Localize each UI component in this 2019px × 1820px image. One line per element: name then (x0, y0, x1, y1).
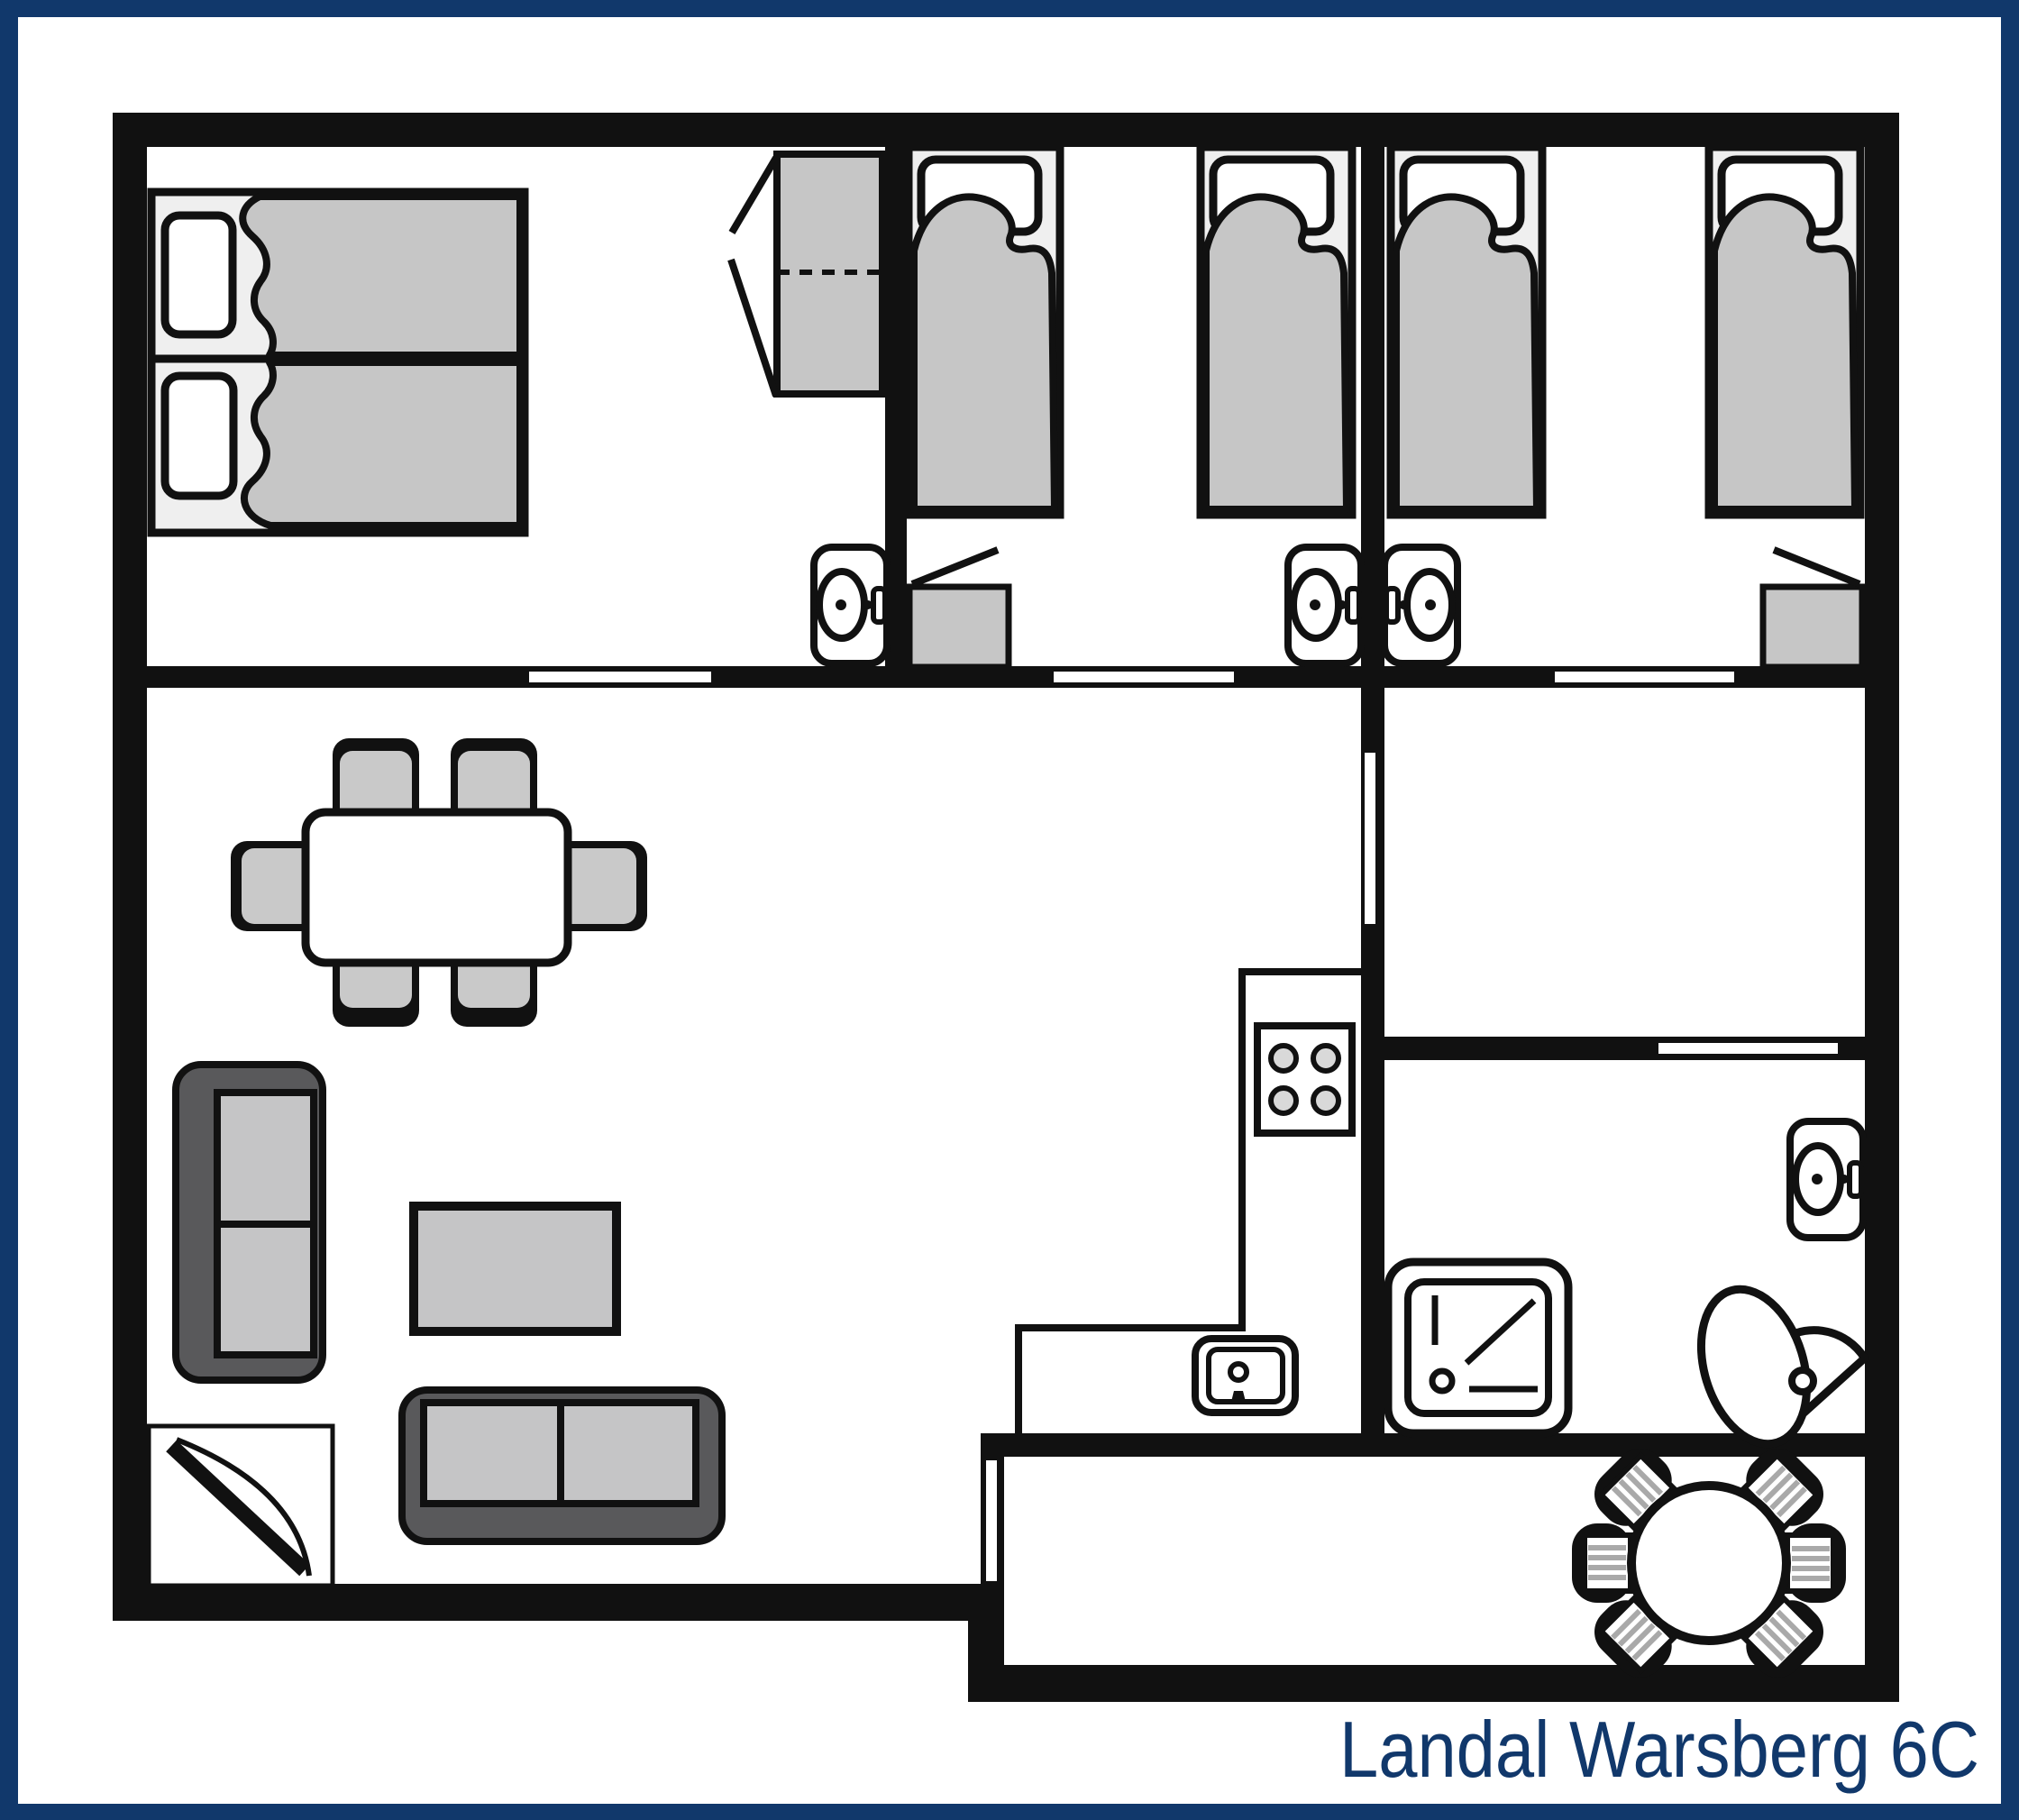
svg-text:Landal Warsberg 6C: Landal Warsberg 6C (1339, 1705, 1979, 1794)
